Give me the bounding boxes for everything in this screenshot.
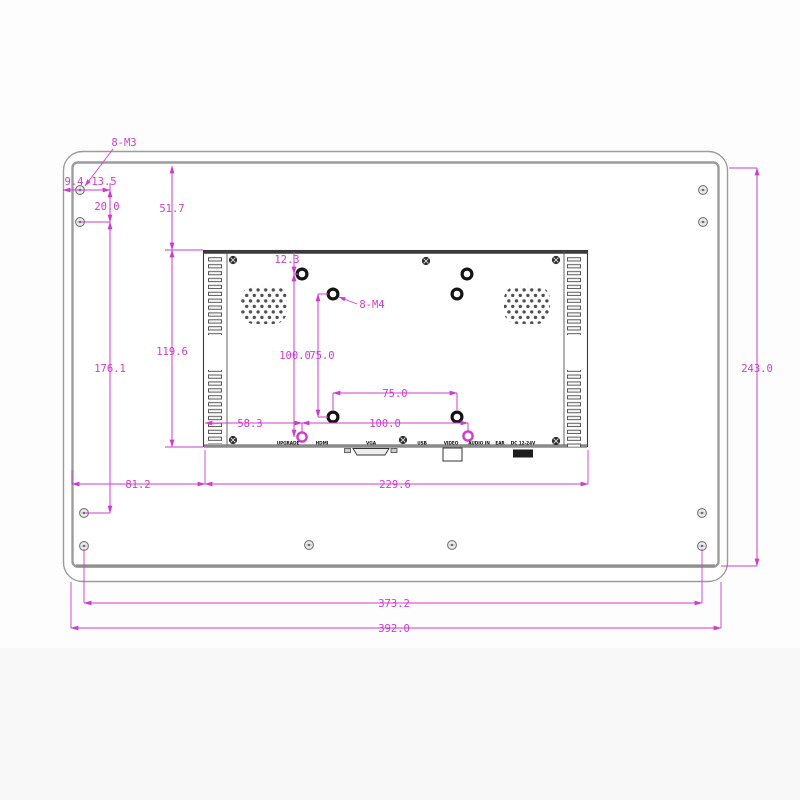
chassis-screw <box>229 436 237 444</box>
dc-jack <box>513 450 533 458</box>
video-connector <box>443 448 462 461</box>
panel-screw <box>698 509 707 518</box>
port-label-upgrade: UPGRADE <box>277 441 300 447</box>
port-label-video: VIDEO <box>444 441 459 447</box>
dim-label-58-3: 58.3 <box>237 418 262 430</box>
vga-connector <box>353 449 389 456</box>
vesa-hole-100-highlighted <box>297 432 306 441</box>
port-label-audio-in: AUDIO IN <box>468 441 490 447</box>
vesa-hole-75 <box>452 289 462 299</box>
port-label-vga: VGA <box>366 441 377 447</box>
vga-screw-post <box>345 449 351 453</box>
port-label-hdmi: HDMI <box>316 441 329 447</box>
panel-screw <box>448 541 457 550</box>
chassis-screw <box>422 257 430 265</box>
speaker-grille-left <box>241 286 287 324</box>
speaker-grille-right <box>504 286 550 324</box>
dim-label-119-6: 119.6 <box>156 346 188 358</box>
vent-slots-left-lower <box>208 370 222 444</box>
vent-slots-right-upper <box>567 256 581 335</box>
dim-label-75-0-h: 75.0 <box>382 388 407 400</box>
dim-label-13-5: 13.5 <box>91 176 116 188</box>
panel-screw <box>699 218 708 227</box>
dim-label-75-0-v: 75.0 <box>309 350 334 362</box>
dim-label-100-0-h: 100.0 <box>369 418 401 430</box>
dim-label-243-0: 243.0 <box>741 363 773 375</box>
drawing-canvas: UPGRADE HDMI VGA USB VIDEO AUDIO IN EAR … <box>0 0 800 800</box>
chassis-screw <box>552 437 560 445</box>
vesa-hole-75 <box>328 412 338 422</box>
vesa-hole-100-highlighted <box>463 431 472 440</box>
vesa-hole-75 <box>452 412 462 422</box>
vent-slots-right-lower <box>567 370 581 447</box>
dim-label-373-2: 373.2 <box>378 598 410 610</box>
dim-label-392-0: 392.0 <box>378 623 410 635</box>
port-label-ear: EAR <box>495 441 505 447</box>
dim-label-20-0: 20.0 <box>94 201 119 213</box>
vent-slots-left-upper <box>208 256 222 335</box>
port-label-usb: USB <box>417 441 427 447</box>
vesa-hole-100 <box>462 269 472 279</box>
vesa-hole-75 <box>328 289 338 299</box>
port-label-dc: DC 12-24V <box>511 441 536 447</box>
dim-label-100-0-v: 100.0 <box>279 350 311 362</box>
chassis-screw <box>399 436 407 444</box>
callout-8-m3: 8-M3 <box>111 137 136 149</box>
dim-label-229-6: 229.6 <box>379 479 411 491</box>
dim-label-176-1: 176.1 <box>94 363 126 375</box>
callout-8-m4: 8-M4 <box>359 299 384 311</box>
panel-screw <box>699 186 708 195</box>
vga-screw-post <box>391 449 397 453</box>
dim-label-9-4: 9.4 <box>65 176 84 188</box>
dim-label-51-7: 51.7 <box>159 203 184 215</box>
dim-label-12-3: 12.3 <box>274 254 299 266</box>
monitor-rear-dimension-drawing: UPGRADE HDMI VGA USB VIDEO AUDIO IN EAR … <box>0 0 800 800</box>
chassis-screw <box>552 256 560 264</box>
chassis-screw <box>229 256 237 264</box>
paper-band <box>0 648 800 800</box>
panel-screw <box>305 541 314 550</box>
dim-label-81-2: 81.2 <box>125 479 150 491</box>
vesa-hole-100 <box>297 269 307 279</box>
